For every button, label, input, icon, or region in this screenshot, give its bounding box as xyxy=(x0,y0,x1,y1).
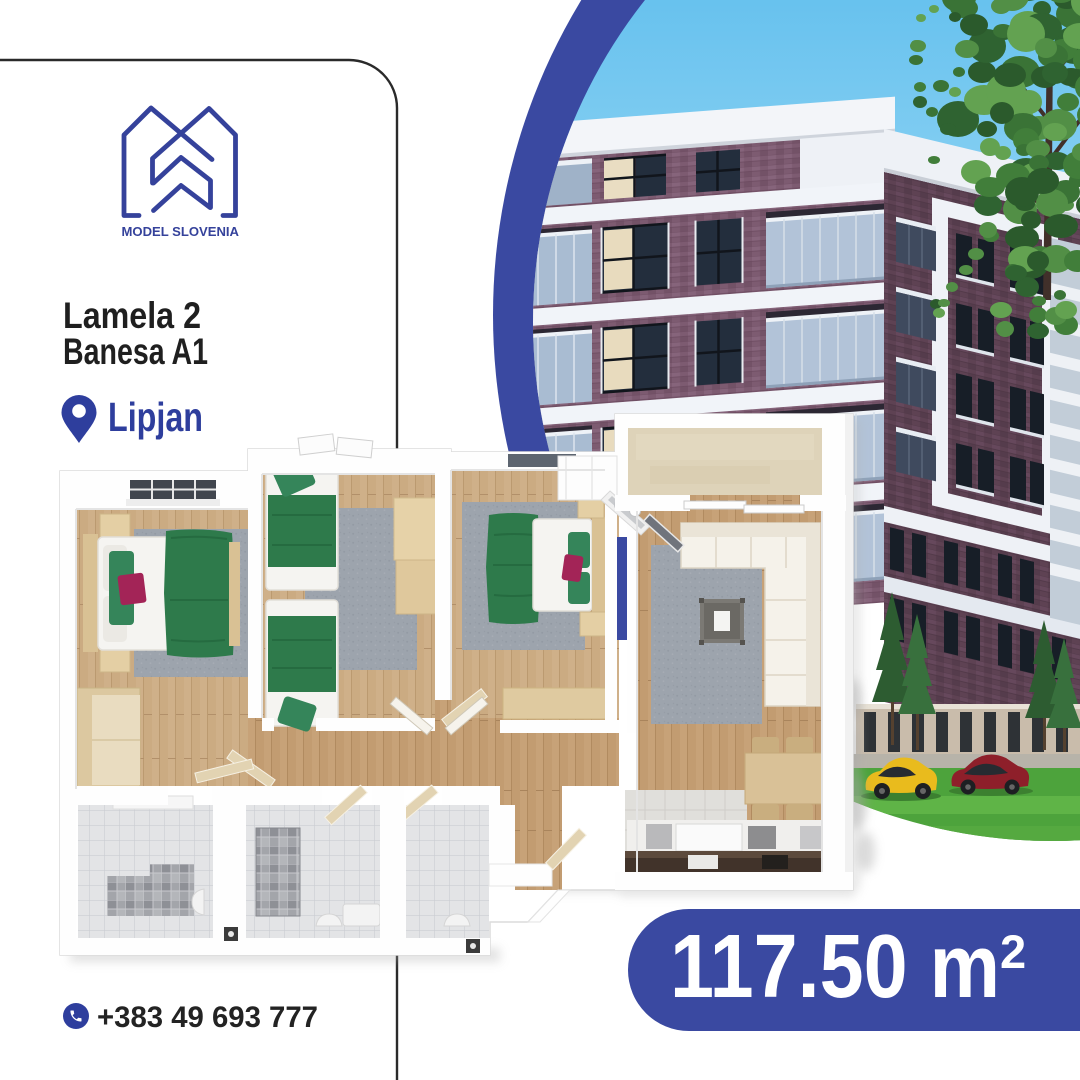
svg-text:Lamela 2: Lamela 2 xyxy=(63,295,201,336)
svg-text:Banesa A1: Banesa A1 xyxy=(63,331,208,372)
svg-text:117.50 m: 117.50 m xyxy=(670,917,1000,1017)
svg-text:2: 2 xyxy=(1000,925,1026,978)
svg-text:+383 49 693 777: +383 49 693 777 xyxy=(97,1001,318,1034)
svg-text:MODEL SLOVENIA: MODEL SLOVENIA xyxy=(122,224,240,239)
svg-text:Lipjan: Lipjan xyxy=(108,394,203,440)
